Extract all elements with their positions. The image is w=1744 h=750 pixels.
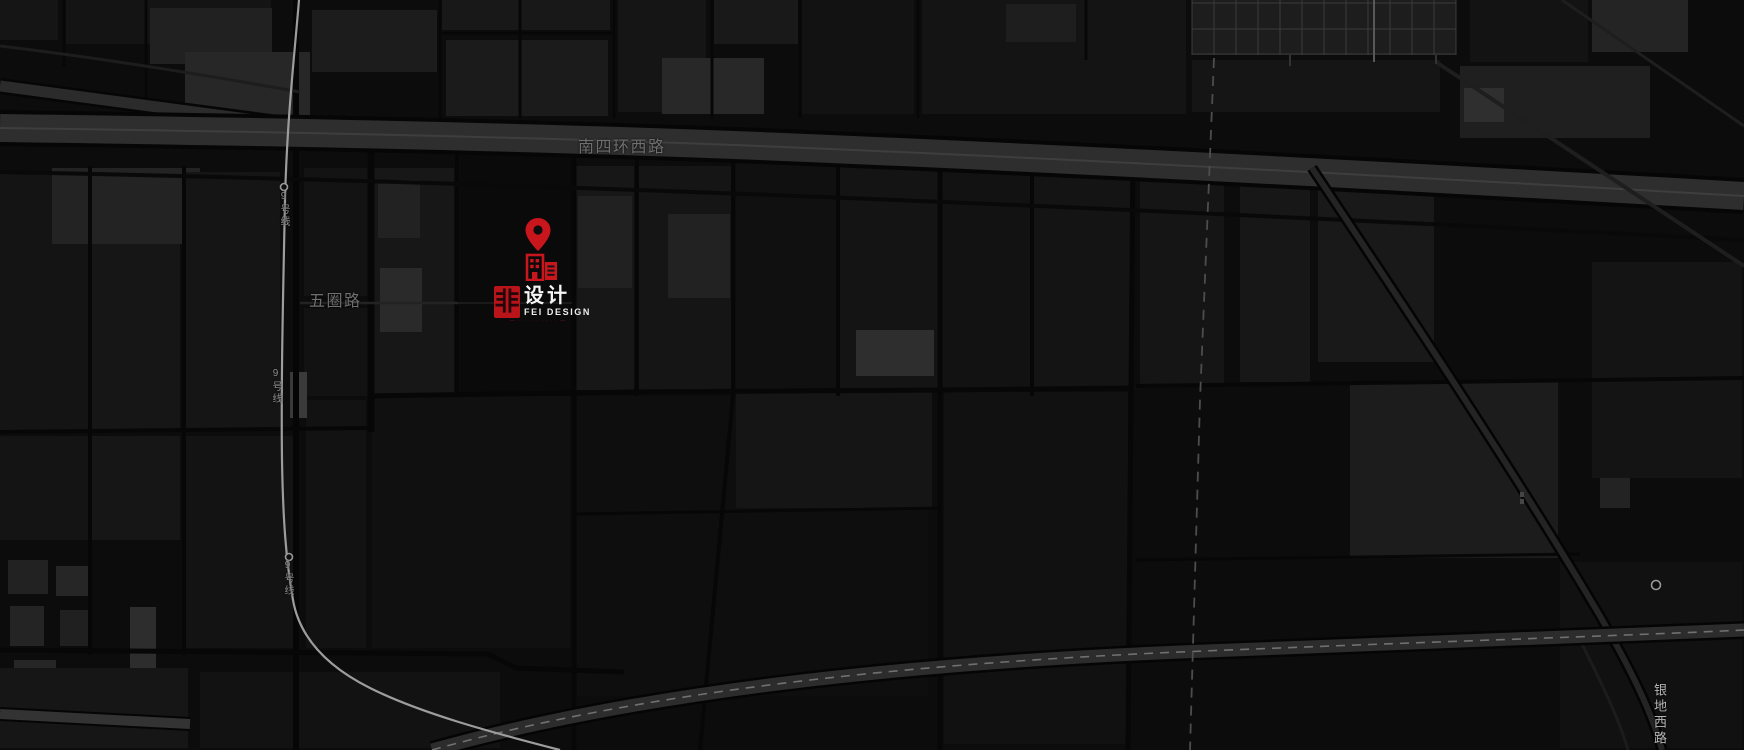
main-road-label: 南四环西路 bbox=[578, 133, 666, 157]
logo-name-zh: 设计 bbox=[524, 286, 591, 306]
metro-station-ring bbox=[281, 184, 288, 191]
company-building-icon bbox=[525, 253, 559, 286]
logo-tagline: — · · · · · · · · · — bbox=[496, 318, 580, 324]
yindi-west-road-label: 银地西路 bbox=[1650, 683, 1669, 747]
location-pin-icon[interactable] bbox=[524, 217, 552, 258]
wuquan-road-label: 五圈路 bbox=[309, 287, 362, 311]
metro-line-9-label: 9号线 bbox=[268, 368, 283, 405]
metro-line-9-label: 9号线 bbox=[276, 191, 291, 228]
fei-design-seal-icon: 非 bbox=[494, 286, 520, 318]
metro-station-ring bbox=[1652, 581, 1661, 590]
map-canvas[interactable]: 南四环西路 五圈路 9号线 9号线 9号线 银地西路 非 设计 FEI DESI… bbox=[0, 0, 1744, 750]
metro-line-9-label: 9号线 bbox=[280, 560, 295, 597]
fei-design-logo: 非 设计 FEI DESIGN bbox=[494, 286, 591, 318]
logo-name-en: FEI DESIGN bbox=[524, 307, 591, 318]
dark-map-graphics bbox=[0, 0, 1744, 750]
